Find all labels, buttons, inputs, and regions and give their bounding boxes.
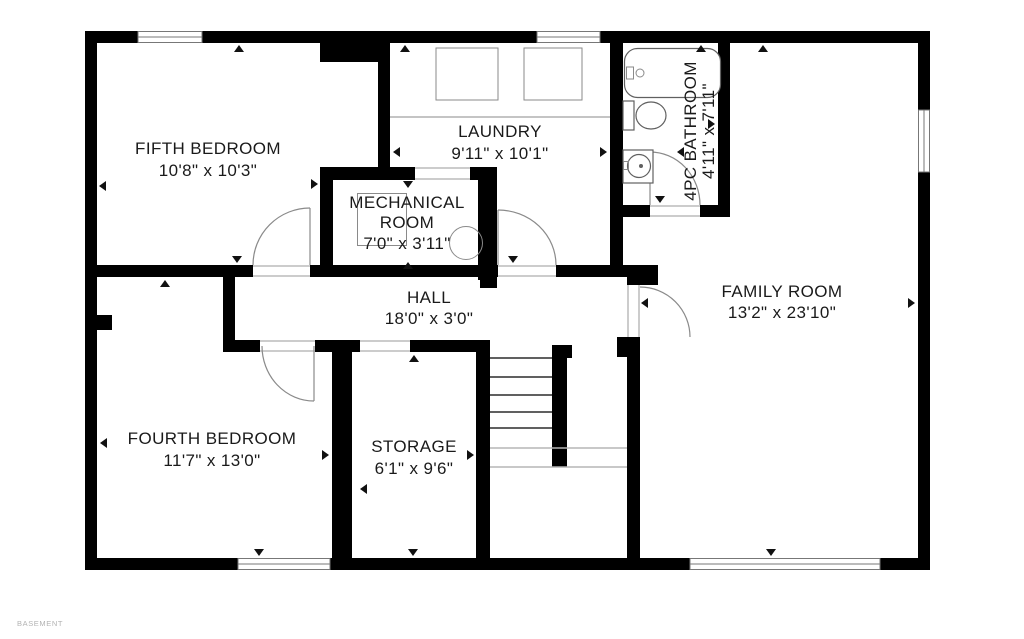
dimension-arrow bbox=[311, 179, 318, 189]
window-family-room-bottom bbox=[690, 559, 880, 570]
dryer-icon bbox=[524, 48, 582, 100]
room-dims-fourth-bedroom: 11'7" x 13'0" bbox=[163, 451, 260, 470]
room-dims-storage: 6'1" x 9'6" bbox=[375, 459, 454, 478]
door-mechanical-opening bbox=[415, 168, 470, 179]
dimension-arrow bbox=[408, 549, 418, 556]
dimension-arrow bbox=[908, 298, 915, 308]
door-fifth-bedroom bbox=[253, 208, 310, 276]
dimension-arrow bbox=[232, 256, 242, 263]
dimension-arrow bbox=[160, 280, 170, 287]
dimension-arrow bbox=[758, 45, 768, 52]
water-heater-icon bbox=[450, 227, 483, 260]
room-dims-family-room: 13'2" x 23'10" bbox=[728, 303, 836, 322]
dimension-arrow bbox=[360, 484, 367, 494]
room-label-bathroom: 4PC BATHROOM bbox=[681, 61, 700, 201]
room-dims-laundry: 9'11" x 10'1" bbox=[451, 144, 548, 163]
room-label-family-room: FAMILY ROOM bbox=[722, 282, 843, 301]
room-label-fourth-bedroom: FOURTH BEDROOM bbox=[128, 429, 297, 448]
floor-watermark-label: BASEMENT bbox=[17, 619, 63, 628]
dimension-arrow bbox=[400, 45, 410, 52]
dimension-arrow bbox=[766, 549, 776, 556]
dimension-arrow bbox=[508, 256, 518, 263]
window-fourth-bedroom bbox=[238, 559, 330, 570]
window-laundry bbox=[537, 32, 600, 43]
room-dims-mechanical: 7'0" x 3'11" bbox=[363, 234, 450, 253]
dimension-arrow bbox=[254, 549, 264, 556]
dimension-arrow bbox=[99, 181, 106, 191]
laundry-appliances bbox=[390, 48, 610, 117]
dimension-arrow bbox=[322, 450, 329, 460]
room-label-mechanical-line2: ROOM bbox=[380, 213, 434, 232]
washer-icon bbox=[436, 48, 498, 100]
dimension-arrow bbox=[403, 181, 413, 188]
window-fifth-bedroom bbox=[138, 32, 202, 43]
room-dims-bathroom: 4'11" x 7'11" bbox=[699, 83, 718, 179]
dimension-arrow bbox=[600, 147, 607, 157]
room-dims-fifth-bedroom: 10'8" x 10'3" bbox=[159, 161, 257, 180]
room-dims-hall: 18'0" x 3'0" bbox=[385, 309, 474, 328]
room-label-fifth-bedroom: FIFTH BEDROOM bbox=[135, 139, 281, 158]
dimension-arrow bbox=[393, 147, 400, 157]
door-fourth-bedroom bbox=[260, 341, 315, 401]
room-label-storage: STORAGE bbox=[371, 437, 457, 456]
room-label-hall: HALL bbox=[407, 288, 451, 307]
room-label-laundry: LAUNDRY bbox=[458, 122, 542, 141]
dimension-arrow bbox=[641, 298, 648, 308]
door-storage-opening bbox=[360, 341, 410, 351]
sink-icon bbox=[623, 150, 653, 183]
door-family-room bbox=[628, 285, 690, 337]
dimension-arrow bbox=[100, 438, 107, 448]
dimension-arrow bbox=[655, 196, 665, 203]
door-laundry bbox=[498, 210, 556, 276]
dimension-arrow bbox=[467, 450, 474, 460]
room-label-mechanical-line1: MECHANICAL bbox=[349, 193, 464, 212]
toilet-icon bbox=[623, 101, 666, 130]
dimension-arrow bbox=[409, 355, 419, 362]
window-family-room-right bbox=[919, 110, 930, 172]
floor-plan-canvas: FIFTH BEDROOM 10'8" x 10'3" LAUNDRY 9'11… bbox=[0, 0, 1024, 639]
dimension-arrow bbox=[234, 45, 244, 52]
